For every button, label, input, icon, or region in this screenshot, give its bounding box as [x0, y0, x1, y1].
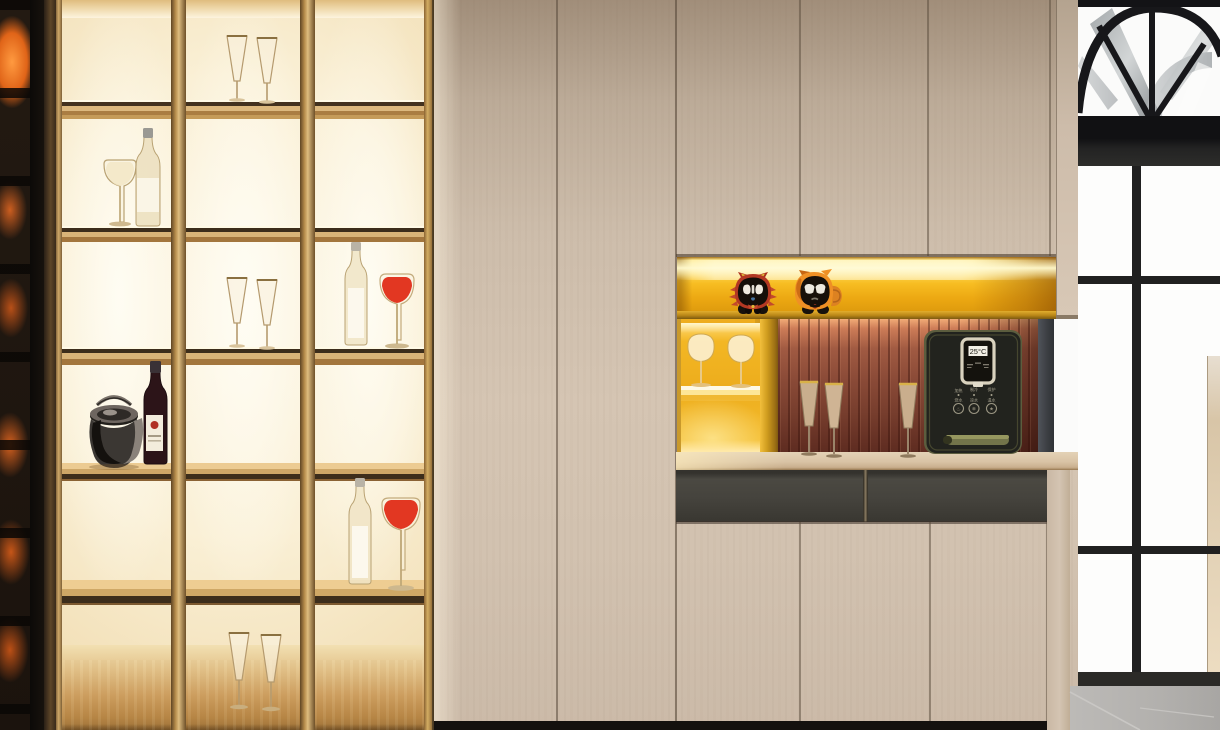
- svg-text:★: ★: [989, 407, 994, 413]
- svg-text:温水: 温水: [988, 397, 996, 403]
- svg-text:烧水: 烧水: [955, 397, 963, 403]
- svg-text:25°C: 25°C: [970, 347, 987, 356]
- svg-text:保护: 保护: [988, 386, 996, 392]
- svg-text:加热: 加热: [955, 387, 963, 393]
- svg-text:制冷: 制冷: [970, 386, 978, 392]
- svg-text:♨: ♨: [956, 407, 960, 413]
- svg-text:❄: ❄: [972, 407, 976, 413]
- svg-text:凉水: 凉水: [970, 397, 978, 403]
